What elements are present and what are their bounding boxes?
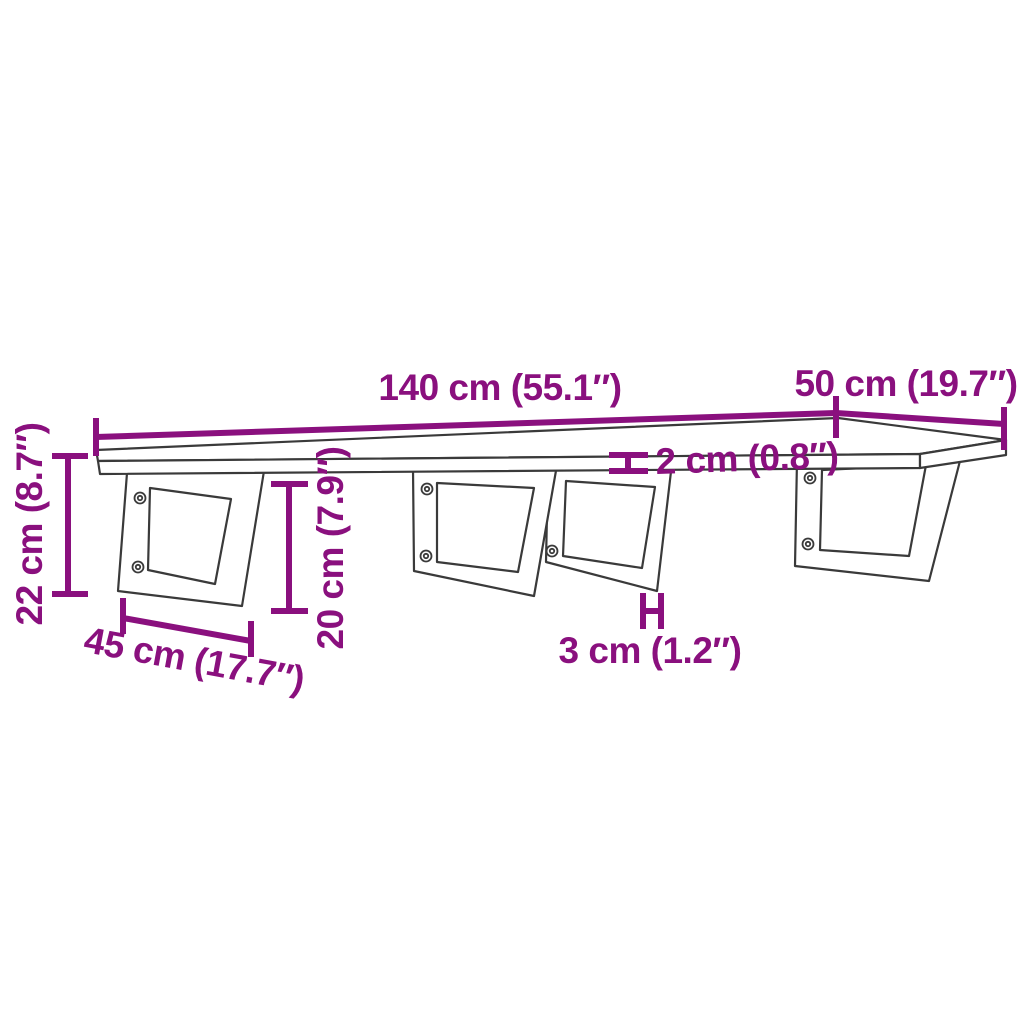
dim-bracket-thickness: 3 cm (1.2″) bbox=[559, 593, 742, 671]
dim-bracket-height-label: 20 cm (7.9″) bbox=[310, 447, 351, 650]
shelf-board bbox=[96, 418, 1006, 474]
bracket-1-panel bbox=[148, 488, 231, 584]
dimension-diagram: 140 cm (55.1″) 50 cm (19.7″) 2 cm (0.8″)… bbox=[0, 0, 1024, 1024]
dim-bracket-height: 20 cm (7.9″) bbox=[271, 447, 351, 650]
bracket-2 bbox=[413, 465, 557, 596]
bracket-4-panel bbox=[820, 465, 926, 556]
diagram-svg: 140 cm (55.1″) 50 cm (19.7″) 2 cm (0.8″)… bbox=[0, 0, 1024, 1024]
dim-total-height: 22 cm (8.7″) bbox=[9, 423, 88, 626]
dim-total-height-label: 22 cm (8.7″) bbox=[9, 423, 50, 626]
bracket-3-panel bbox=[563, 481, 655, 568]
dim-bracket-thickness-label: 3 cm (1.2″) bbox=[559, 630, 742, 671]
bracket-2-panel bbox=[437, 483, 534, 572]
bracket-3 bbox=[546, 463, 672, 591]
dim-board-thickness-label: 2 cm (0.8″) bbox=[655, 435, 839, 482]
bracket-1 bbox=[118, 471, 264, 606]
dim-board-depth-label: 50 cm (19.7″) bbox=[794, 363, 1017, 404]
dim-board-width-label: 140 cm (55.1″) bbox=[378, 367, 621, 408]
